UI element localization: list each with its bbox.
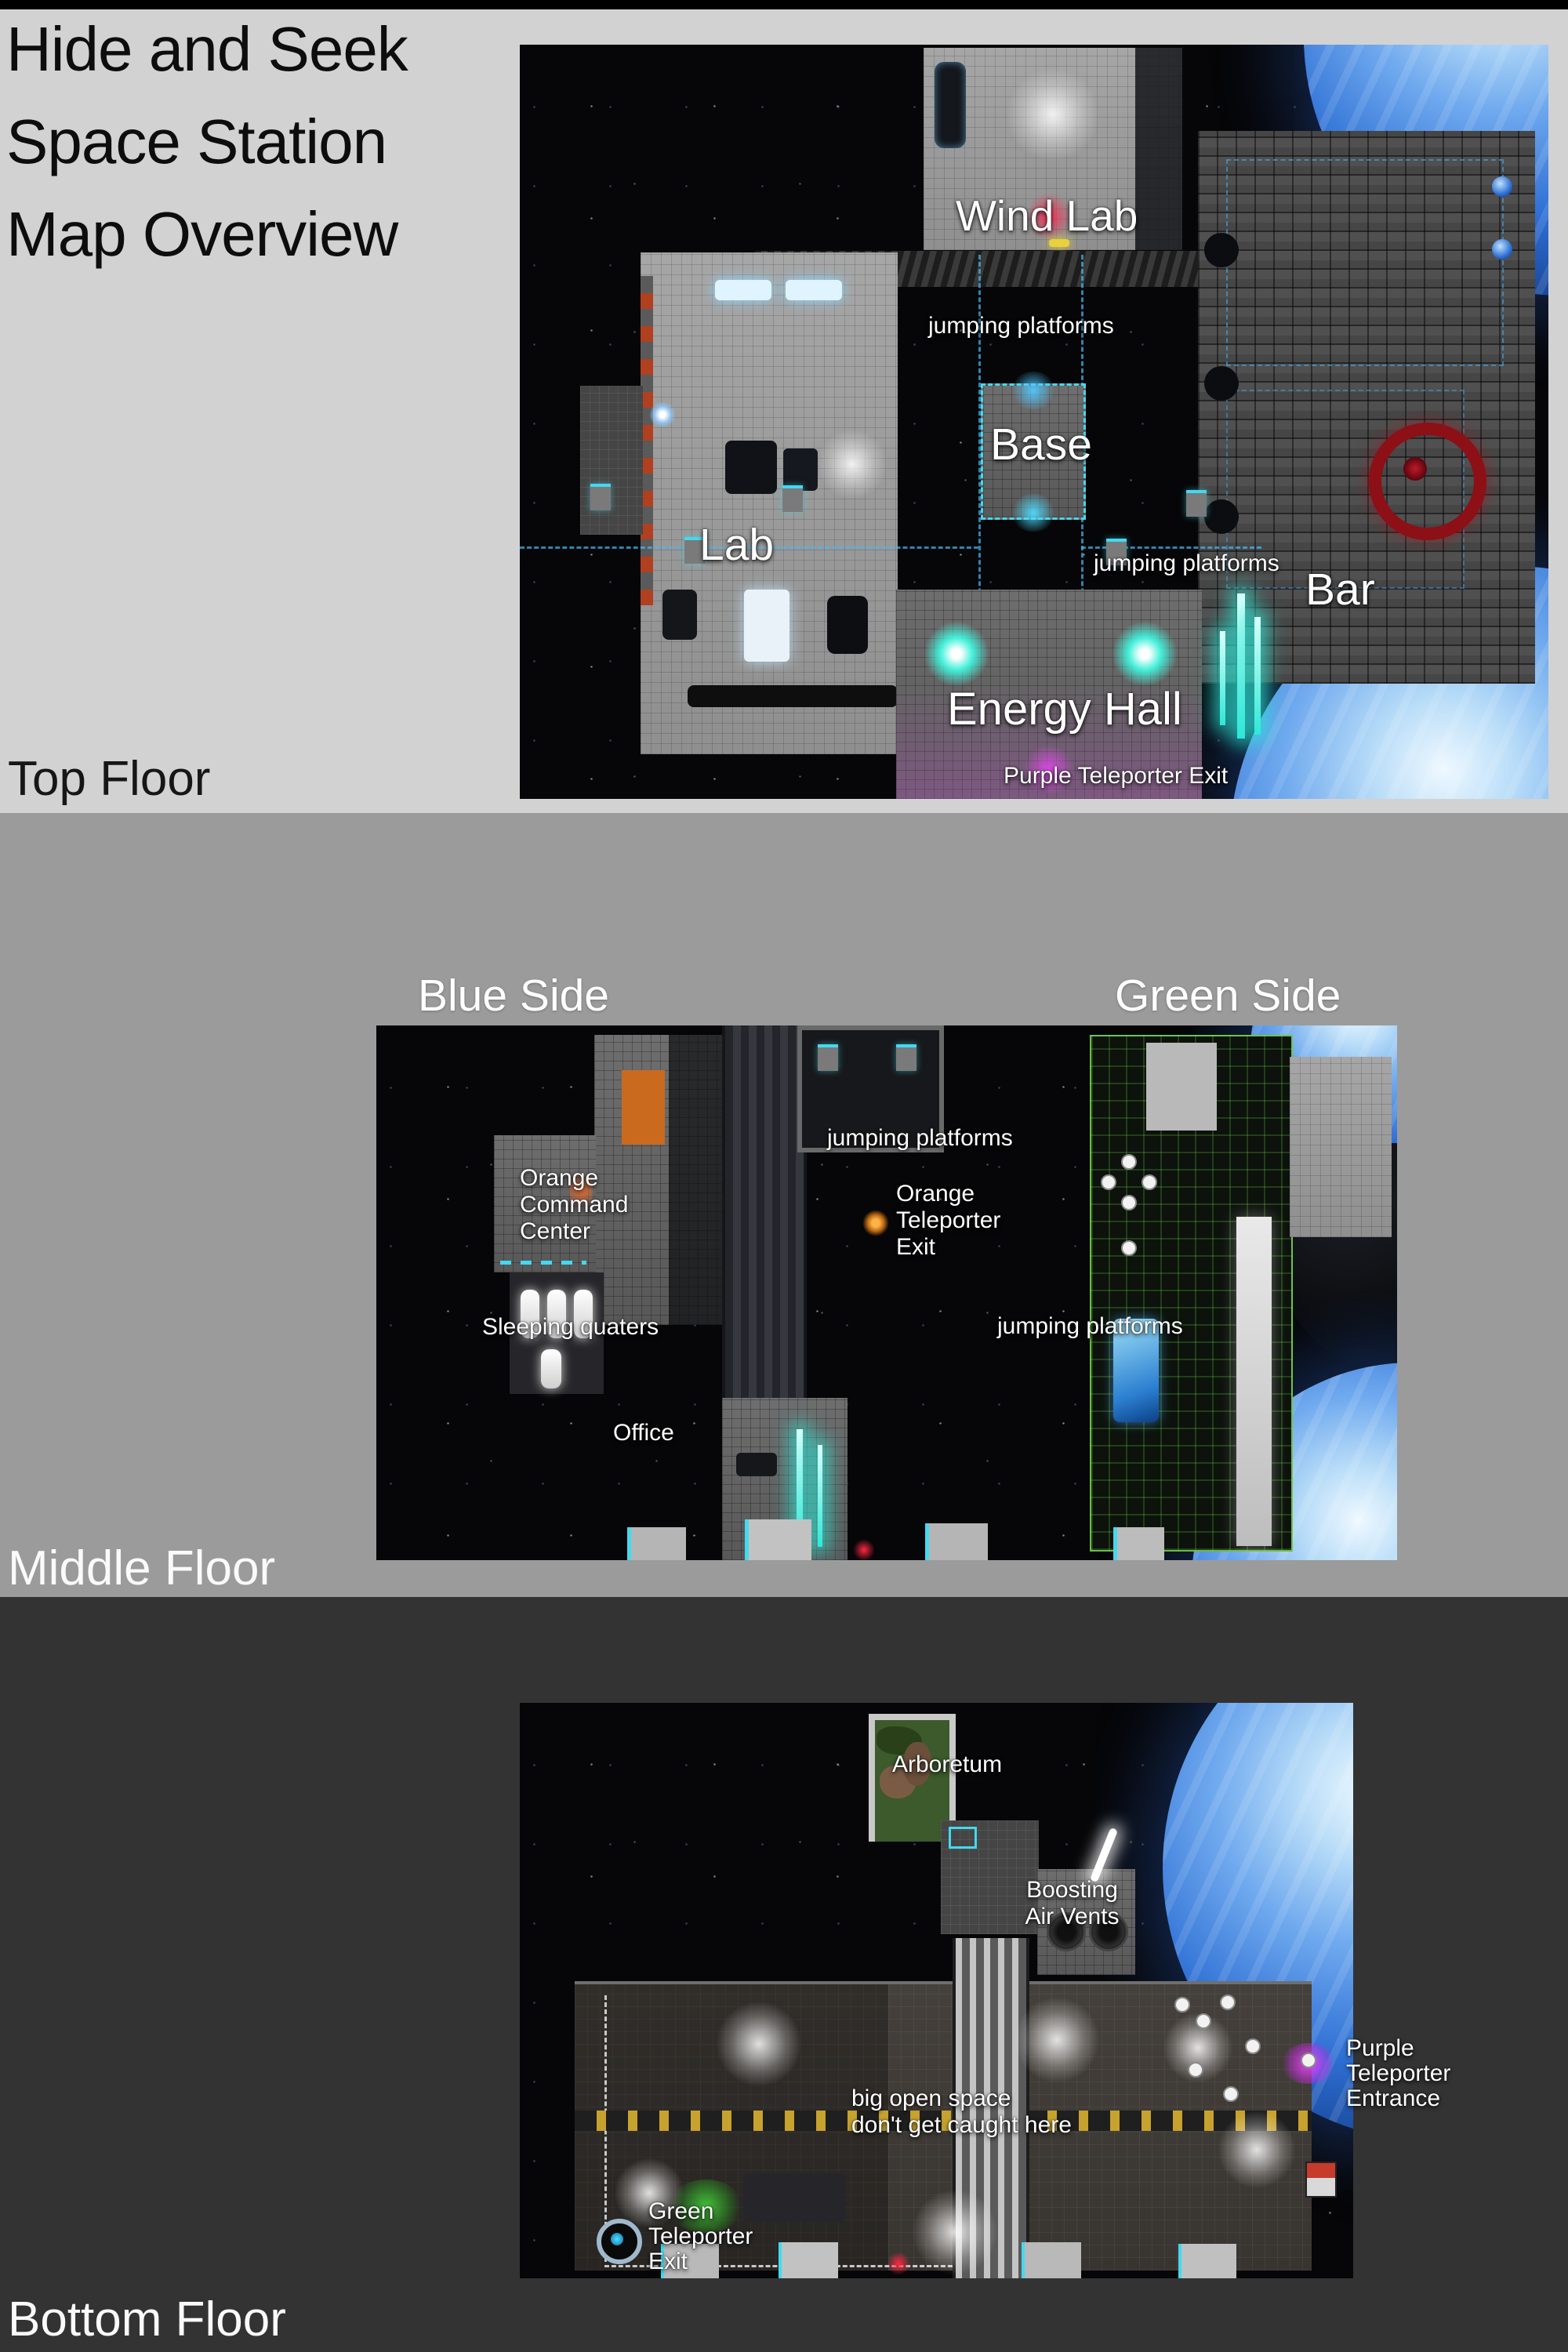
light-dot [1121, 1240, 1137, 1256]
bar-red-ring-core [1403, 457, 1427, 481]
spotlight [1218, 2111, 1296, 2189]
section-bottom-floor: Arboretum Boosting Air Vents big open sp… [0, 1597, 1568, 2352]
bottom-platform [745, 1519, 811, 1560]
area-label-orange-command-center: Orange Command Center [520, 1165, 628, 1245]
lab-black-bar [688, 685, 898, 707]
hull-porthole-2 [1492, 239, 1512, 260]
lab-desk-light [817, 429, 887, 499]
orange-panel [622, 1070, 665, 1145]
green-room-walkway [1236, 1217, 1272, 1546]
robot-ball [1174, 1997, 1190, 2013]
area-label-big-open-space: big open space don't get caught here [851, 2085, 1072, 2139]
area-label-energy-hall: Energy Hall [947, 683, 1182, 735]
robot-ball [1220, 1994, 1236, 2010]
bottom-platform [779, 2242, 838, 2278]
robot-ball [1196, 2013, 1211, 2029]
lab-bots [662, 590, 697, 640]
area-label-jumping-platforms-upper: jumping platforms [928, 313, 1114, 339]
bottom-platform [1178, 2244, 1236, 2278]
top-floor-map: Wind Lab jumping platforms Base Lab jump… [520, 45, 1548, 799]
robot-ball [1188, 2062, 1203, 2078]
area-label-green-teleporter-exit: Green Teleporter Exit [648, 2199, 753, 2274]
spotlight [716, 2001, 802, 2087]
bottom-platform [627, 1527, 686, 1560]
green-room-white-bay [1146, 1043, 1217, 1131]
bed [541, 1349, 561, 1388]
hull-porthole-1 [1492, 176, 1512, 197]
area-label-purple-teleporter-entrance: Purple Teleporter Entrance [1346, 2036, 1450, 2111]
area-label-lab: Lab [699, 519, 774, 571]
lab-machine-dark [725, 441, 777, 494]
area-label-sleeping-quaters: Sleeping quaters [482, 1314, 659, 1341]
floor-label-top: Top Floor [8, 751, 210, 807]
lab-couch [827, 596, 868, 654]
energy-coil-left [924, 621, 989, 687]
robot-ball [1223, 2086, 1239, 2102]
area-label-office: Office [613, 1420, 674, 1446]
bottom-platform [1022, 2242, 1081, 2278]
map-overview-poster: Hide and Seek Space Station Map Overview [0, 0, 1568, 2352]
section-top-floor: Hide and Seek Space Station Map Overview [0, 9, 1568, 813]
area-label-jumping-platforms-upper: jumping platforms [827, 1125, 1013, 1152]
office-teal-line-2 [818, 1445, 822, 1547]
area-label-orange-teleporter-exit: Orange Teleporter Exit [896, 1181, 1000, 1261]
light-dot [1142, 1174, 1157, 1190]
red-button-box [1305, 2161, 1337, 2198]
light-dot [1101, 1174, 1116, 1190]
area-label-jumping-platforms-lower: jumping platforms [997, 1313, 1183, 1340]
area-label-jumping-platforms-lower: jumping platforms [1094, 550, 1279, 577]
right-wing-structure [1290, 1057, 1392, 1237]
wind-lab-turbine-cluster [1006, 67, 1100, 162]
floor-label-middle: Middle Floor [8, 1541, 275, 1596]
purple-teleporter-pad [1301, 2053, 1316, 2068]
lab-glow-table-1 [715, 280, 771, 300]
lab-console [783, 448, 818, 491]
bottom-floor-map: Arboretum Boosting Air Vents big open sp… [520, 1703, 1353, 2278]
bar-red-ring [1369, 423, 1486, 540]
spotlight [1014, 1997, 1100, 2083]
green-side-room [1090, 1035, 1293, 1552]
jump-platform [590, 484, 611, 510]
lab-glow-table-2 [786, 280, 842, 300]
green-area-machine [743, 2173, 845, 2222]
area-label-wind-lab: Wind Lab [956, 191, 1138, 241]
base-glow-top [1010, 372, 1057, 409]
section-middle-floor: Blue Side Green Side [0, 813, 1568, 1597]
base-glow-bottom [1010, 494, 1057, 532]
jump-platform [818, 1044, 838, 1071]
area-label-base: Base [990, 419, 1092, 470]
teal-light-column-2 [1254, 617, 1261, 735]
lab-annex [580, 386, 643, 535]
teal-light-column-1 [1237, 593, 1245, 739]
lab-white-table [744, 590, 789, 662]
bottom-platform [1113, 1527, 1164, 1560]
area-label-bar: Bar [1305, 564, 1375, 615]
wind-lab-dark-bay [1135, 48, 1182, 250]
red-marker [853, 1539, 875, 1560]
area-label-arboretum: Arboretum [892, 1751, 1002, 1778]
light-dot [1121, 1154, 1137, 1170]
red-marker [887, 2252, 910, 2275]
light-dot [1121, 1195, 1137, 1210]
teal-light-column-3 [1220, 631, 1225, 725]
top-black-bar [0, 0, 1568, 9]
jump-platform [896, 1044, 916, 1071]
page-title: Hide and Seek Space Station Map Overview [6, 9, 408, 281]
floor-label-bottom: Bottom Floor [8, 2292, 286, 2347]
occ-cyan-dashes [500, 1261, 586, 1265]
wind-lab-pod [935, 62, 966, 148]
orange-teleporter-glow [862, 1210, 889, 1236]
energy-coil-right [1112, 621, 1178, 687]
jump-platform [1186, 490, 1207, 517]
side-label-blue: Blue Side [418, 970, 609, 1022]
building-shadow-bay [669, 1035, 724, 1325]
lab-room [641, 252, 898, 754]
blue-teleporter-core [611, 2233, 623, 2245]
middle-floor-map: jumping platforms Orange Teleporter Exit… [376, 1025, 1397, 1560]
bar-blue-rail-upper [1226, 159, 1504, 366]
bar-porthole-3 [1204, 499, 1239, 534]
bar-porthole-1 [1204, 233, 1239, 267]
side-label-green: Green Side [1115, 970, 1341, 1022]
robot-ball [1245, 2038, 1261, 2054]
cyan-hatch [949, 1827, 977, 1849]
area-label-purple-teleporter-exit: Purple Teleporter Exit [1004, 763, 1228, 789]
office-desk [736, 1453, 777, 1476]
bottom-platform [925, 1523, 988, 1560]
jump-platform [782, 485, 803, 512]
spotlight [912, 2189, 998, 2275]
area-label-boosting-air-vents: Boosting Air Vents [1011, 1877, 1133, 1930]
bar-porthole-2 [1204, 366, 1239, 401]
airlock-ring-glow [649, 401, 676, 428]
